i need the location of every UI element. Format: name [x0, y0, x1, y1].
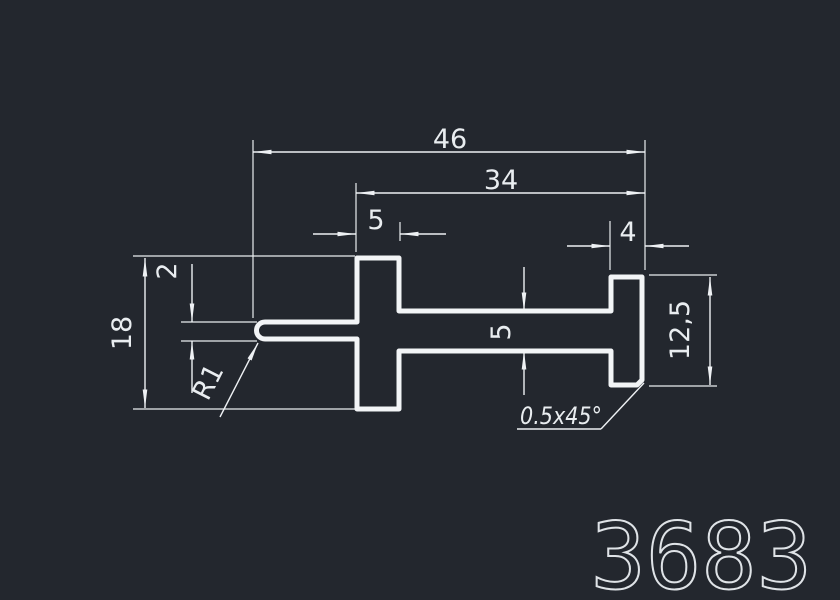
- dim-label-right-flange-width: 4: [619, 217, 636, 248]
- dim-label-right-height: 12,5: [665, 300, 696, 360]
- dim-label-left-height: 18: [107, 316, 138, 350]
- dim-label-slot-thickness: 2: [152, 262, 183, 279]
- dim-label-upper-width: 34: [484, 165, 518, 196]
- dim-label-left-flange-width: 5: [367, 205, 384, 236]
- part-number: 3683: [590, 503, 812, 600]
- dim-label-chamfer: 0.5x45°: [520, 402, 602, 430]
- dim-label-overall-width: 46: [433, 124, 467, 155]
- cad-drawing-canvas: 46 34 5 4 18 2 5 12,5 R1 0.5x45° 3683: [0, 0, 840, 600]
- dim-label-web-thickness: 5: [486, 323, 517, 340]
